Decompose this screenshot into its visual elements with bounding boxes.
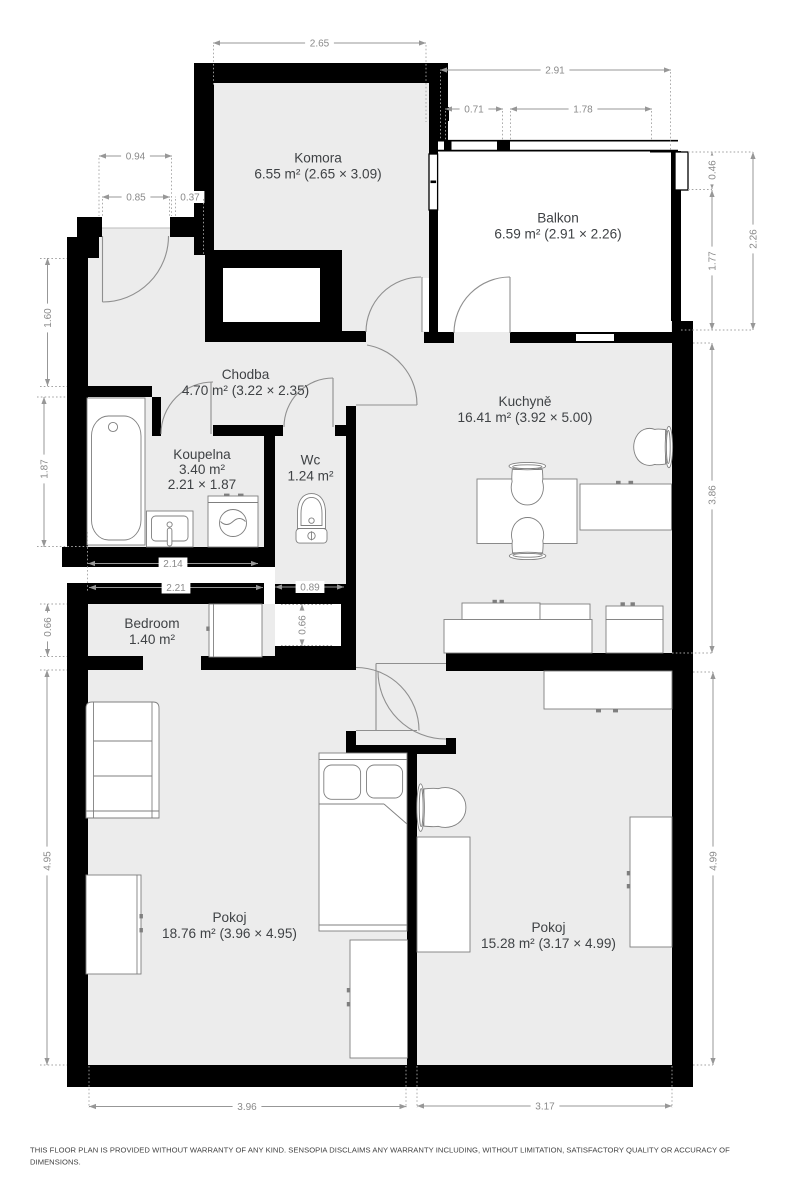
svg-text:Chodba: Chodba <box>222 367 270 382</box>
svg-text:0.66: 0.66 <box>43 617 54 637</box>
svg-text:15.28 m² (3.17 × 4.99): 15.28 m² (3.17 × 4.99) <box>481 936 616 951</box>
svg-text:Pokoj: Pokoj <box>531 920 565 935</box>
svg-text:DIMENSIONS.: DIMENSIONS. <box>30 1158 81 1167</box>
svg-text:0.89: 0.89 <box>300 582 320 593</box>
svg-text:1.40 m²: 1.40 m² <box>129 632 176 647</box>
svg-text:THIS FLOOR PLAN IS PROVIDED WI: THIS FLOOR PLAN IS PROVIDED WITHOUT WARR… <box>30 1146 730 1155</box>
svg-text:2.14: 2.14 <box>163 559 183 570</box>
svg-text:Kuchyně: Kuchyně <box>499 394 552 409</box>
svg-text:Pokoj: Pokoj <box>212 910 246 925</box>
svg-text:Koupelna: Koupelna <box>173 447 231 462</box>
svg-text:6.59 m² (2.91 × 2.26): 6.59 m² (2.91 × 2.26) <box>494 227 621 242</box>
svg-text:2.21: 2.21 <box>166 583 186 594</box>
svg-text:2.26: 2.26 <box>748 229 759 249</box>
svg-text:4.95: 4.95 <box>42 851 53 871</box>
svg-text:18.76 m² (3.96 × 4.95): 18.76 m² (3.96 × 4.95) <box>162 926 297 941</box>
svg-text:1.87: 1.87 <box>39 459 50 479</box>
svg-text:0.94: 0.94 <box>126 151 146 162</box>
svg-text:2.91: 2.91 <box>545 65 565 76</box>
svg-text:2.65: 2.65 <box>310 38 330 49</box>
svg-text:1.24 m²: 1.24 m² <box>287 469 334 484</box>
svg-text:16.41 m² (3.92 × 5.00): 16.41 m² (3.92 × 5.00) <box>458 410 593 425</box>
svg-text:3.17: 3.17 <box>535 1101 555 1112</box>
svg-text:0.71: 0.71 <box>464 104 484 115</box>
svg-text:0.66: 0.66 <box>297 615 308 635</box>
svg-text:Bedroom: Bedroom <box>124 616 179 631</box>
svg-text:0.85: 0.85 <box>126 192 146 203</box>
svg-text:3.96: 3.96 <box>237 1102 257 1113</box>
svg-text:0.37: 0.37 <box>180 192 200 203</box>
svg-text:3.86: 3.86 <box>707 485 718 505</box>
svg-text:3.40 m²: 3.40 m² <box>179 462 226 477</box>
svg-text:1.77: 1.77 <box>707 251 718 271</box>
svg-text:1.78: 1.78 <box>573 104 593 115</box>
svg-text:4.99: 4.99 <box>708 851 719 871</box>
svg-text:2.21 × 1.87: 2.21 × 1.87 <box>168 477 236 492</box>
svg-text:6.55 m² (2.65 × 3.09): 6.55 m² (2.65 × 3.09) <box>254 167 381 182</box>
svg-text:1.60: 1.60 <box>43 308 54 328</box>
svg-text:0.46: 0.46 <box>707 160 718 180</box>
svg-text:Balkon: Balkon <box>537 211 579 226</box>
svg-text:Wc: Wc <box>301 453 321 468</box>
svg-text:Komora: Komora <box>294 151 342 166</box>
svg-text:4.70 m² (3.22 × 2.35): 4.70 m² (3.22 × 2.35) <box>182 383 309 398</box>
